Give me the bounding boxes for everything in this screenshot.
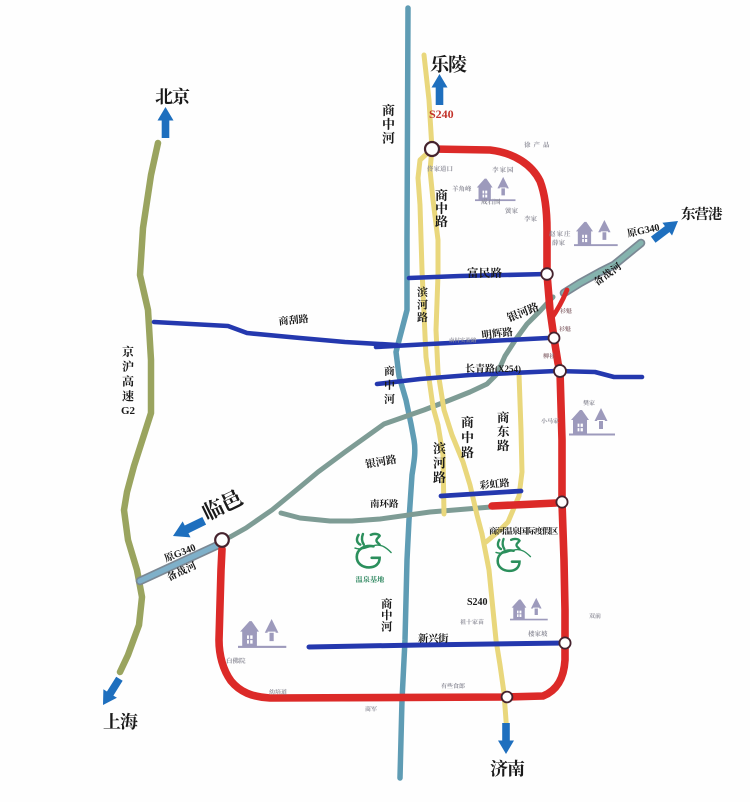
svg-text:G2: G2 (121, 405, 136, 417)
svg-text:S240: S240 (467, 597, 488, 608)
svg-text:(X254): (X254) (495, 364, 521, 374)
svg-text:S240: S240 (429, 107, 454, 121)
